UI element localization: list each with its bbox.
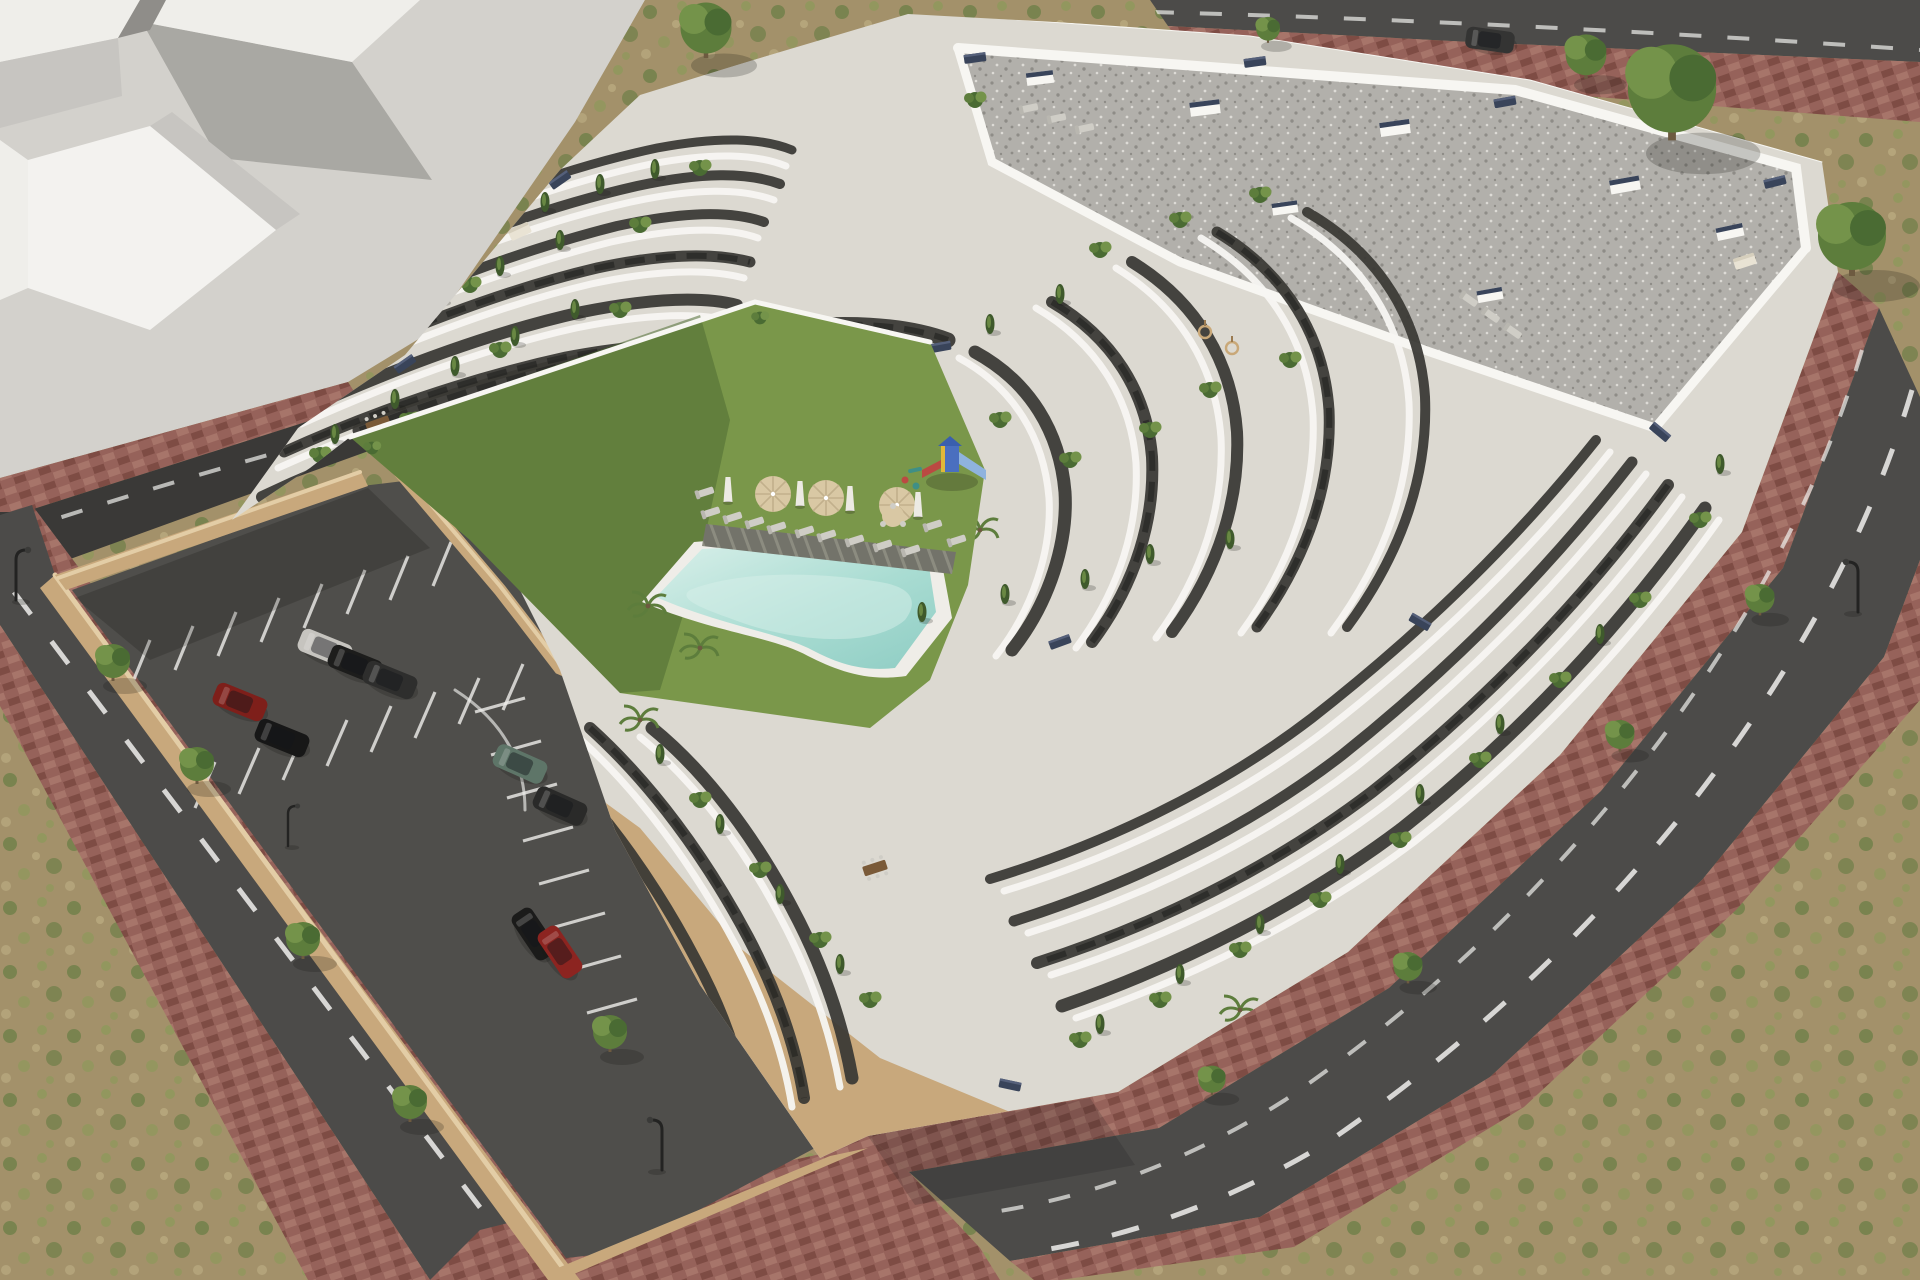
scene-canvas [0, 0, 1920, 1280]
aerial-render [0, 0, 1920, 1280]
